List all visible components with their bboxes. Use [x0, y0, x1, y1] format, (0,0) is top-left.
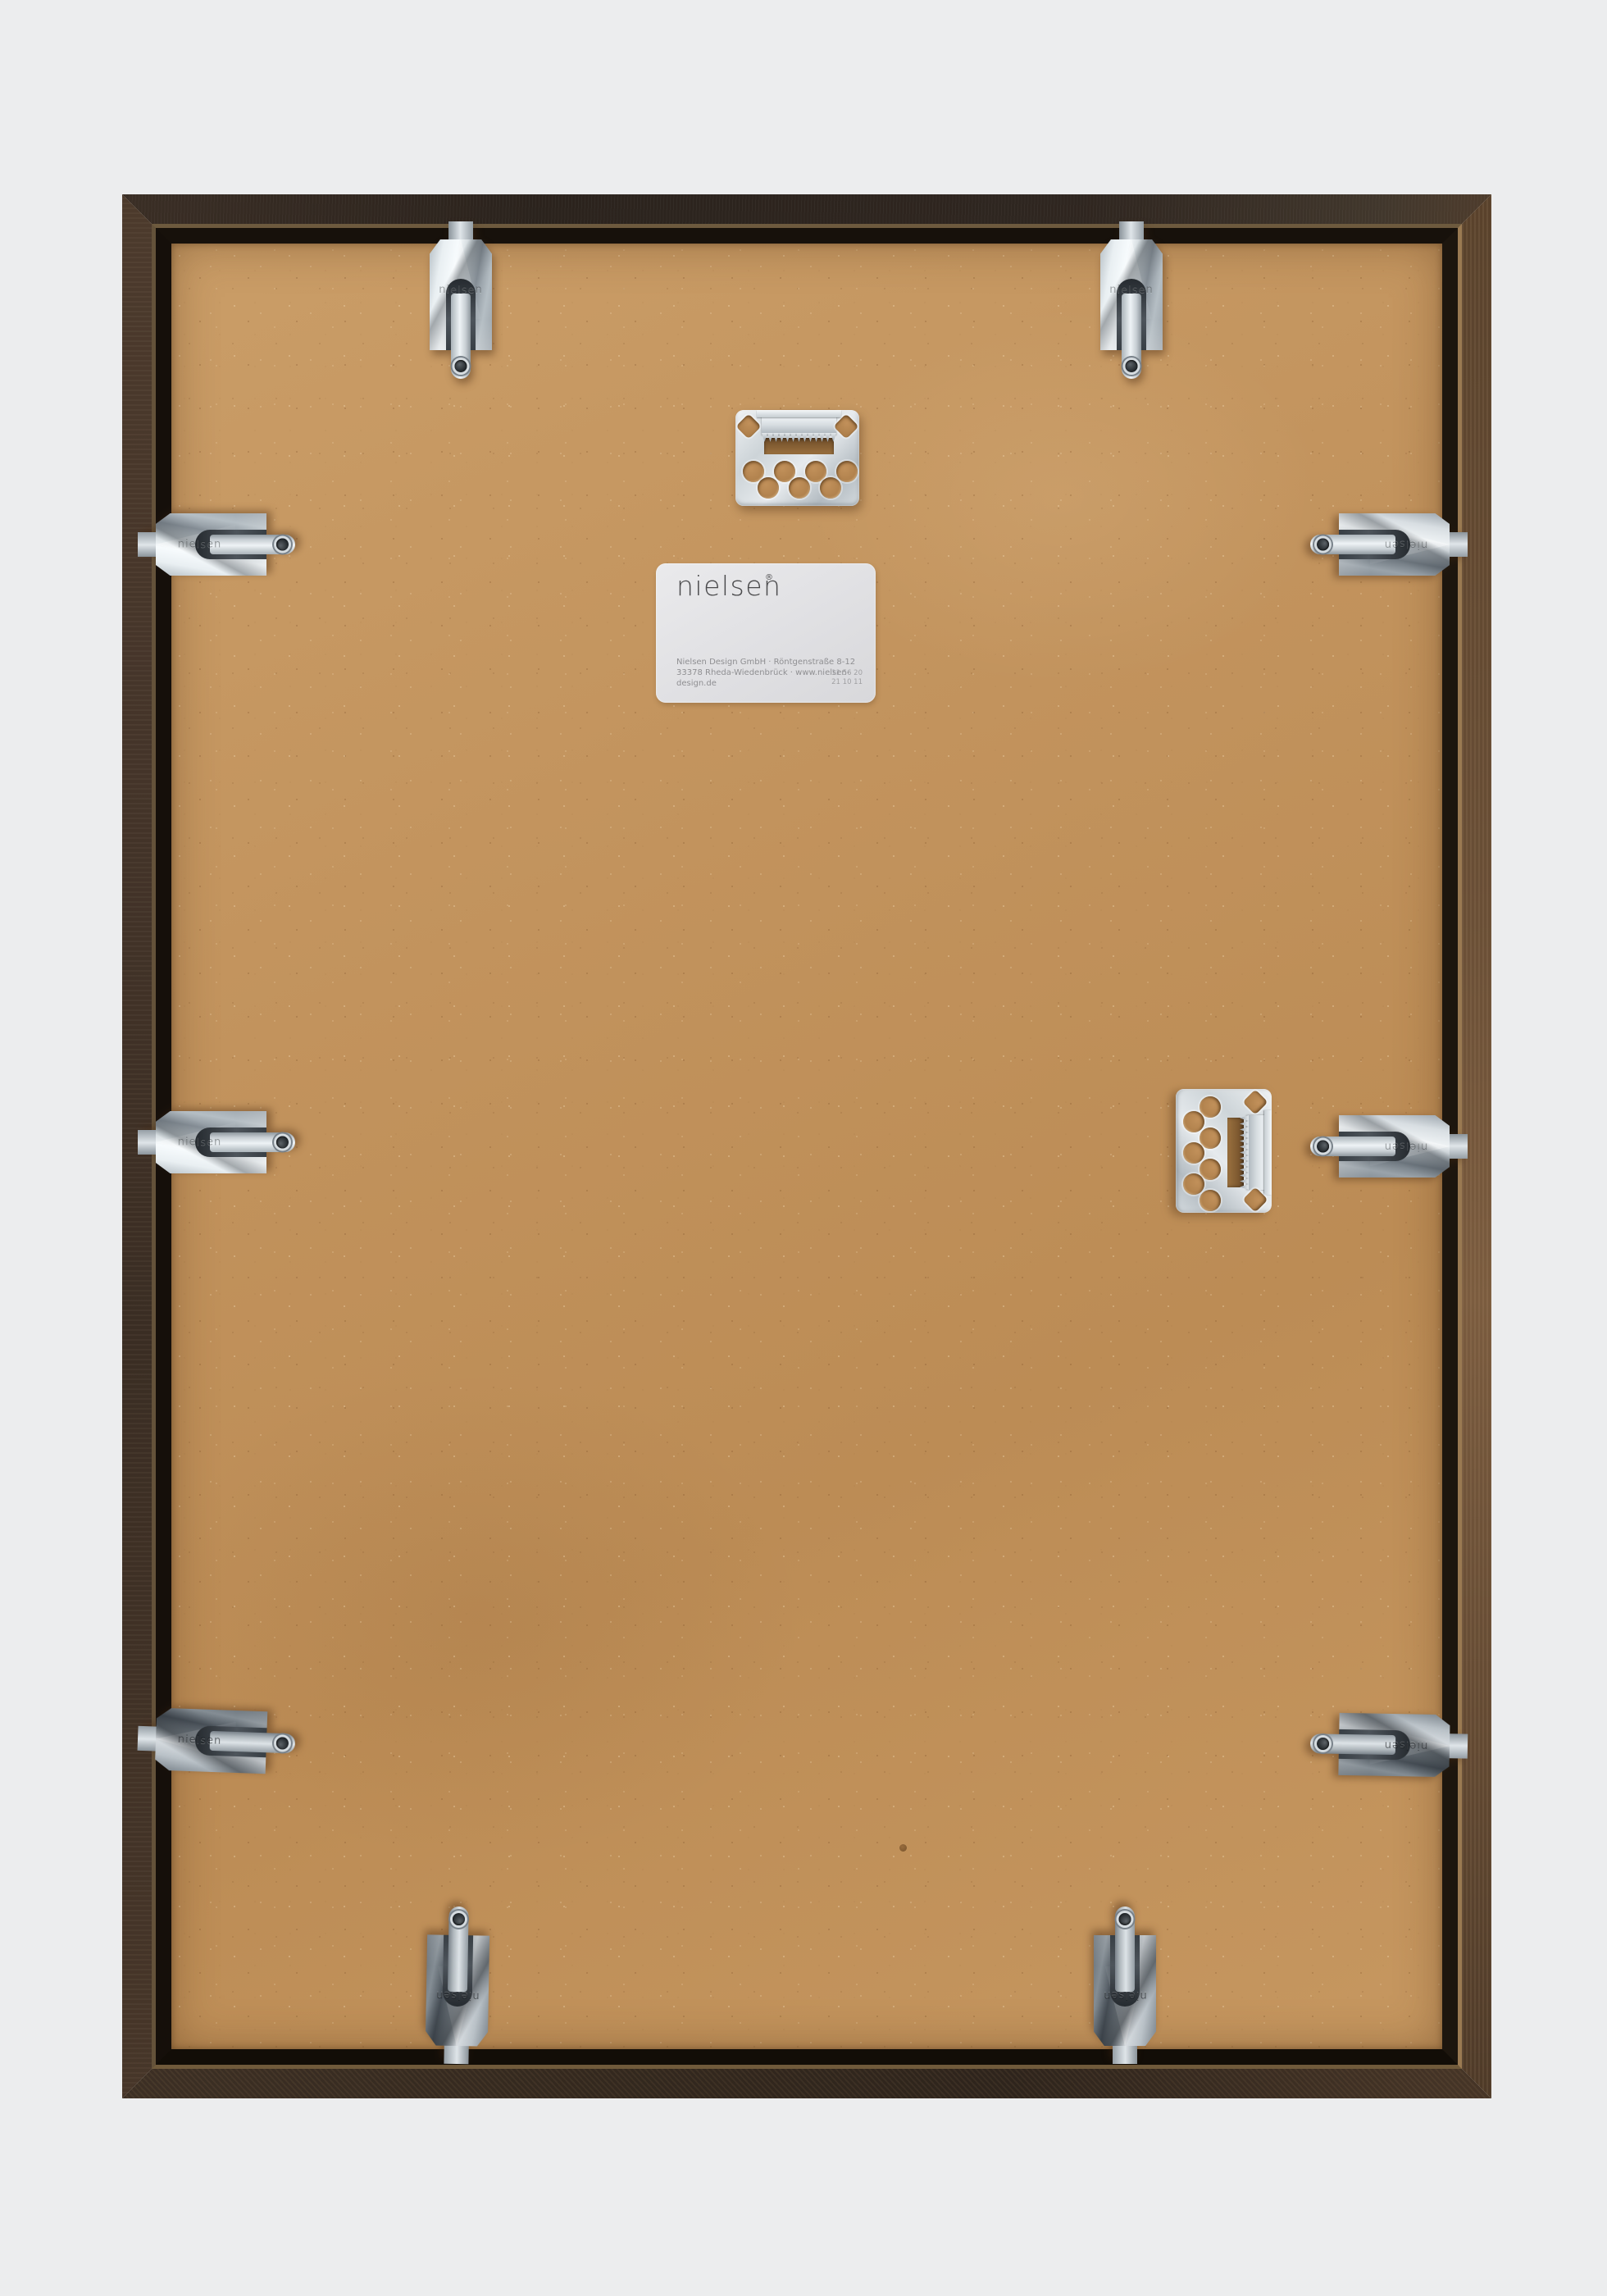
clip-screw-hole	[276, 1737, 289, 1750]
hanger-hole	[820, 477, 841, 499]
hanger-serrated-bar	[762, 410, 836, 435]
clip-brand-embossing: nielsen	[1092, 1989, 1158, 2002]
clip-brand-embossing: nielsen	[167, 1137, 233, 1149]
clip-tongue	[451, 294, 471, 379]
clip-screw-hole	[1317, 539, 1329, 551]
sawtooth-hanger-top-center	[735, 410, 859, 506]
clip-screw-hole	[455, 360, 467, 372]
spring-clip-right-middle: nielsen	[1310, 1114, 1474, 1179]
spring-clip-left-middle: nielsen	[131, 1109, 295, 1175]
clip-brand-embossing: nielsen	[425, 1988, 490, 2002]
hanger-serrated-bar	[1247, 1115, 1272, 1190]
hanger-hole	[1183, 1111, 1204, 1132]
clip-brand-embossing: nielsen	[1373, 1738, 1438, 1752]
hanger-hole	[1200, 1096, 1221, 1118]
label-address-line1: Nielsen Design GmbH · Röntgenstraße 8-12	[676, 657, 876, 667]
spring-clip-top-left: nielsen	[428, 215, 494, 379]
hanger-hole	[758, 477, 779, 499]
hanger-hole	[789, 477, 810, 499]
sawtooth-hanger-middle-right	[1176, 1089, 1272, 1213]
clip-brand-embossing: nielsen	[428, 284, 494, 296]
label-stamp-line2: 21 10 11	[831, 678, 863, 687]
clip-brand-embossing: nielsen	[1099, 284, 1164, 296]
label-stamp-line1: 11 56 20	[831, 669, 863, 678]
spring-clip-bottom-right: nielsen	[1092, 1906, 1158, 2070]
spring-clip-left-upper: nielsen	[131, 512, 295, 577]
clip-screw-hole	[1126, 360, 1138, 372]
clip-screw-hole	[453, 1913, 465, 1925]
label-stamp: 11 56 20 21 10 11	[831, 669, 863, 687]
hanger-hole	[1200, 1159, 1221, 1180]
clip-brand-embossing: nielsen	[1373, 539, 1439, 551]
nielsen-label: nielsen ® Nielsen Design GmbH · Röntgens…	[656, 563, 876, 703]
clip-screw-hole	[276, 1137, 289, 1149]
frame-moulding-bottom	[122, 2069, 1491, 2098]
clip-brand-embossing: nielsen	[166, 1733, 232, 1748]
spring-clip-right-lower: nielsen	[1309, 1711, 1474, 1779]
photo-backdrop: nielsen ® Nielsen Design GmbH · Röntgens…	[0, 0, 1607, 2296]
hanger-hole	[836, 461, 858, 482]
frame-moulding-top	[122, 194, 1491, 224]
clip-brand-embossing: nielsen	[167, 539, 233, 551]
clip-screw-hole	[1317, 1738, 1329, 1750]
backing-mark	[899, 1844, 907, 1852]
hanger-hole	[1183, 1173, 1204, 1195]
spring-clip-right-upper: nielsen	[1310, 512, 1474, 577]
clip-screw-hole	[276, 539, 289, 551]
clip-tongue	[1115, 1906, 1135, 1992]
clip-tongue	[448, 1906, 469, 1992]
clip-screw-hole	[1317, 1141, 1329, 1153]
clip-brand-embossing: nielsen	[1373, 1141, 1439, 1153]
clip-screw-hole	[1119, 1913, 1131, 1925]
spring-clip-bottom-left: nielsen	[423, 1906, 491, 2070]
hanger-hole	[1200, 1127, 1221, 1149]
hanger-hole	[1183, 1142, 1204, 1164]
spring-clip-top-right: nielsen	[1099, 215, 1164, 379]
spring-clip-left-lower: nielsen	[130, 1706, 297, 1777]
label-registered-mark: ®	[765, 573, 773, 582]
clip-tongue	[1122, 294, 1141, 379]
hanger-hole	[1200, 1190, 1221, 1211]
